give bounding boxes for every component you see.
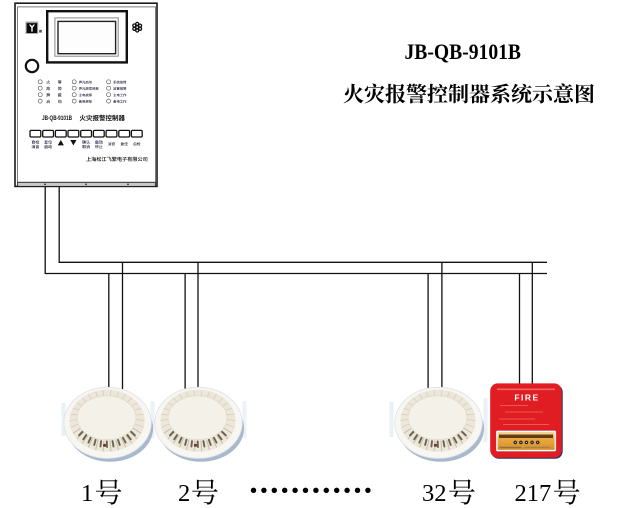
svg-text:JB-QB-9101B: JB-QB-9101B	[405, 39, 522, 64]
svg-text:217: 217	[515, 480, 552, 507]
svg-text:1: 1	[81, 480, 93, 507]
svg-text:32: 32	[422, 480, 447, 507]
svg-text:2: 2	[178, 480, 190, 507]
svg-text:FIRE: FIRE	[514, 392, 539, 402]
svg-text:JB-QB-9101B: JB-QB-9101B	[42, 116, 73, 122]
